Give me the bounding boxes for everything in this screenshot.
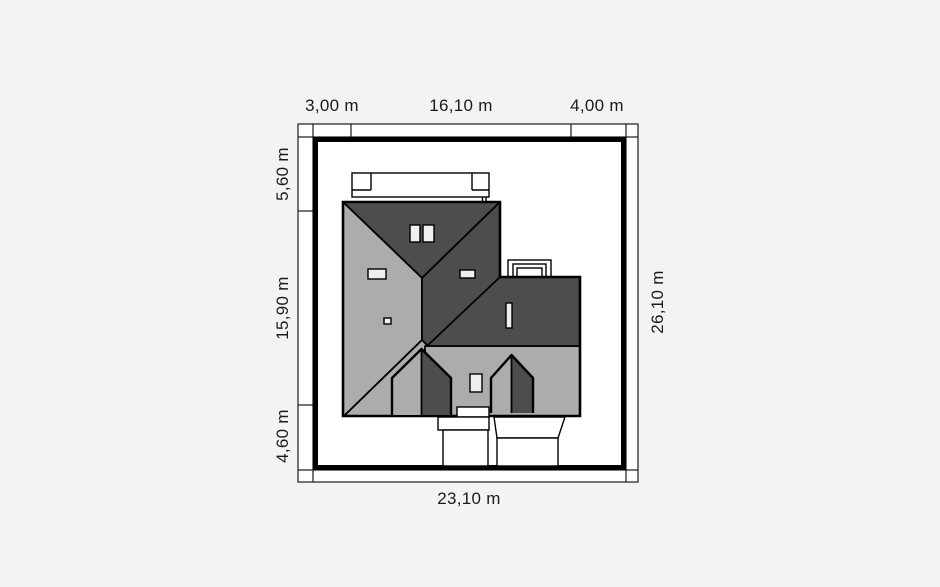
skylight-west bbox=[368, 269, 386, 279]
chimney bbox=[508, 260, 551, 278]
terrace-outline bbox=[352, 173, 489, 202]
skylight-east bbox=[460, 270, 475, 278]
dim-left-bottom: 4,60 m bbox=[273, 391, 293, 481]
dim-top-right: 4,00 m bbox=[552, 96, 642, 116]
dim-bottom: 23,10 m bbox=[424, 489, 514, 509]
driveway bbox=[497, 438, 558, 466]
roof-vent bbox=[384, 318, 391, 324]
dim-top-center: 16,10 m bbox=[416, 96, 506, 116]
dim-left-top: 5,60 m bbox=[273, 129, 293, 219]
dim-left-middle: 15,90 m bbox=[273, 263, 293, 353]
dim-right: 26,10 m bbox=[648, 257, 668, 347]
skylight-pair-left bbox=[410, 225, 420, 242]
skylight-pair-right bbox=[423, 225, 434, 242]
skylight-right-block bbox=[506, 303, 512, 328]
porch-walk bbox=[443, 430, 488, 466]
site-plan-canvas: 3,00 m 16,10 m 4,00 m 5,60 m 15,90 m 4,6… bbox=[0, 0, 940, 587]
wall-window bbox=[470, 374, 482, 392]
porch-upper bbox=[438, 417, 489, 430]
driveway-apron bbox=[494, 417, 565, 438]
entry-step bbox=[457, 407, 489, 417]
dim-top-left: 3,00 m bbox=[287, 96, 377, 116]
